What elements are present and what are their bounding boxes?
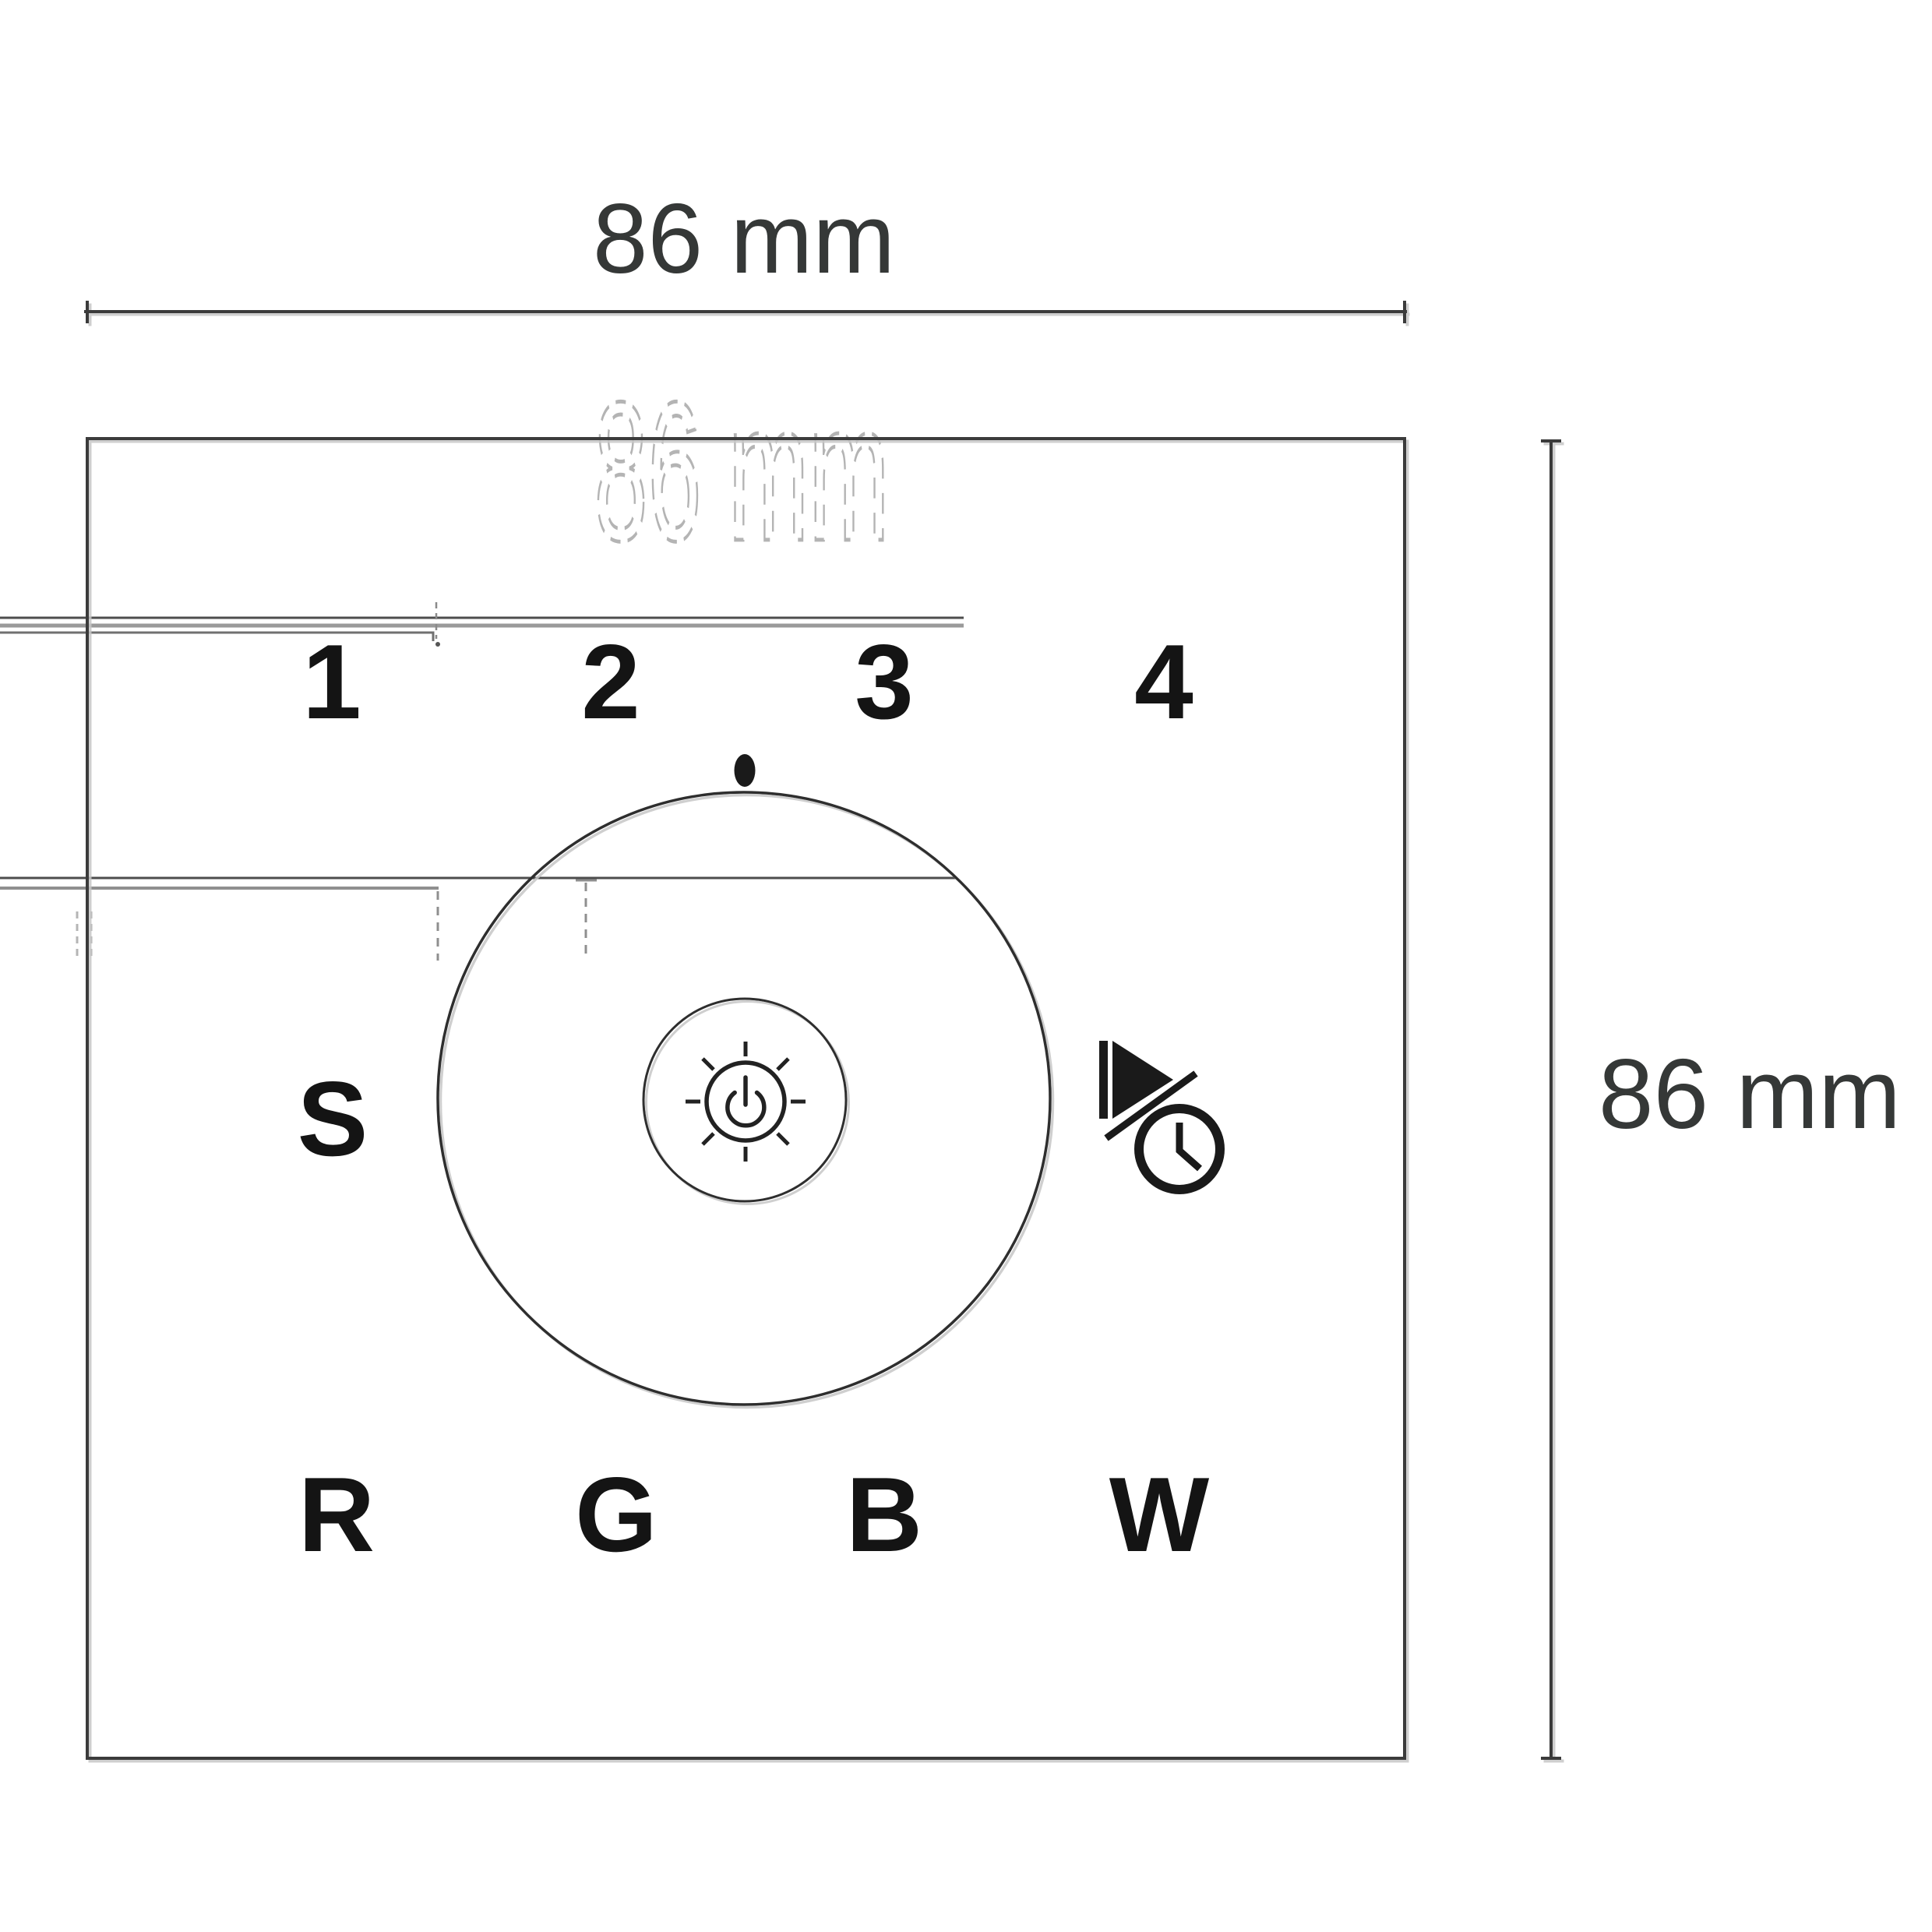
- color-button-g: G: [575, 1455, 658, 1574]
- channel-button-1: 1: [302, 622, 361, 741]
- scene-button-label: S: [298, 1059, 368, 1178]
- power-brightness-icon: [686, 1042, 806, 1162]
- height-dimension-line: [1541, 441, 1561, 1758]
- channel-button-3: 3: [855, 622, 914, 741]
- dial-marker-dot: [735, 754, 756, 787]
- width-dimension-line: [84, 301, 1407, 323]
- color-button-r: R: [298, 1455, 375, 1574]
- color-button-w: W: [1109, 1455, 1210, 1574]
- height-dimension-label: 86 mm: [1599, 1038, 1901, 1149]
- ghost-dimension-label: 86 mm: [594, 361, 890, 582]
- leader-lines-upper: [0, 602, 964, 647]
- width-dimension-label: 86 mm: [593, 183, 895, 294]
- channel-buttons-row: 1 2 3 4: [302, 622, 1193, 741]
- color-button-b: B: [846, 1455, 922, 1574]
- channel-button-4: 4: [1134, 622, 1193, 741]
- channel-button-2: 2: [581, 622, 640, 741]
- play-timer-icon: [1099, 1041, 1220, 1190]
- panel-dimension-drawing: 86 mm: [0, 0, 1932, 1932]
- color-buttons-row: R G B W: [298, 1455, 1210, 1574]
- play-bar: [1099, 1041, 1108, 1119]
